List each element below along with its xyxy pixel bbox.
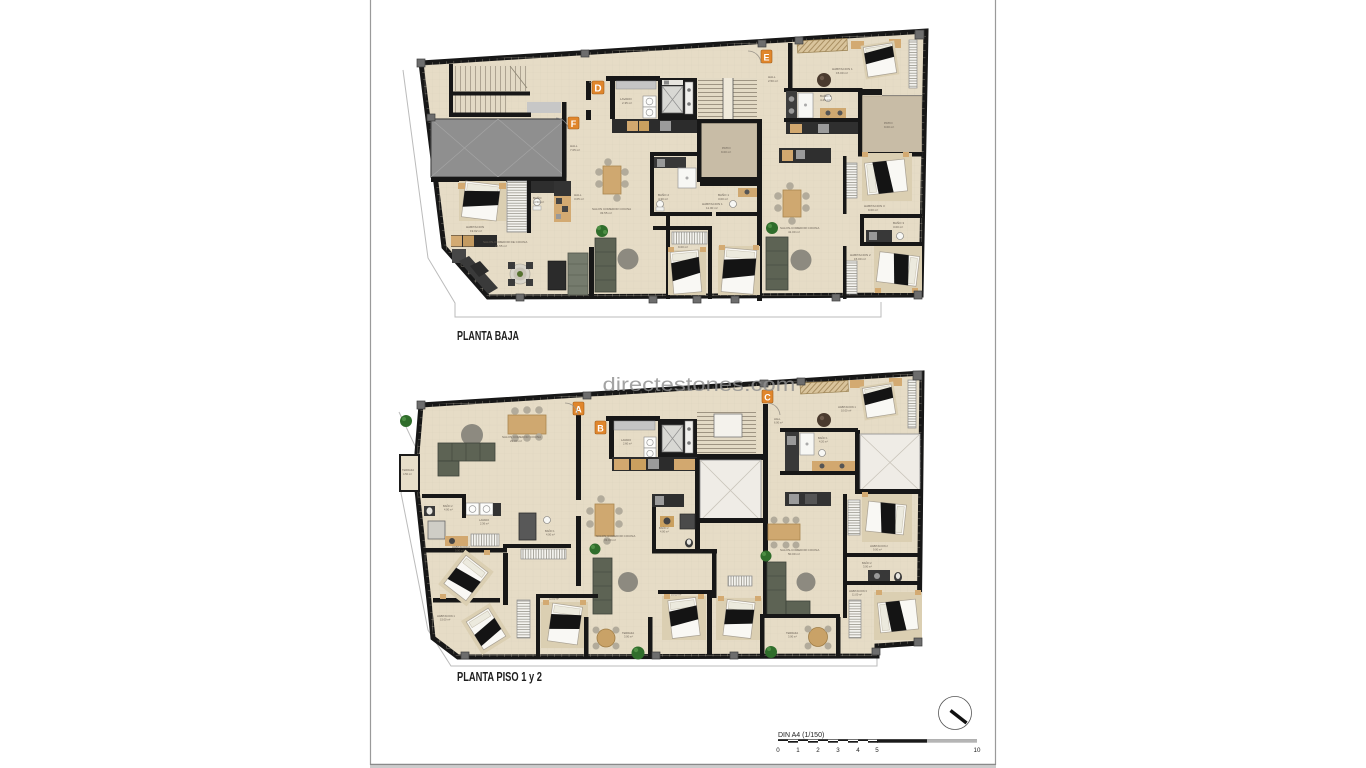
- svg-text:B: B: [597, 424, 604, 434]
- svg-text:LAVADO: LAVADO: [479, 518, 489, 522]
- svg-text:E: E: [763, 53, 769, 63]
- svg-text:2.60 m²: 2.60 m²: [623, 442, 632, 446]
- svg-text:9.00 m²: 9.00 m²: [455, 549, 464, 553]
- svg-text:4.00 m²: 4.00 m²: [546, 533, 555, 537]
- svg-text:2.50 m²: 2.50 m²: [768, 79, 778, 83]
- svg-text:4.00 m²: 4.00 m²: [660, 530, 669, 534]
- svg-text:7.05 m²: 7.05 m²: [570, 148, 580, 152]
- svg-text:3.50 m²: 3.50 m²: [534, 200, 544, 204]
- svg-text:3.00 m²: 3.00 m²: [788, 635, 797, 639]
- svg-text:3.00 m²: 3.00 m²: [624, 635, 633, 639]
- svg-text:3: 3: [836, 747, 840, 754]
- svg-text:HABITACION 2: HABITACION 2: [870, 544, 888, 548]
- svg-text:3.00 m²: 3.00 m²: [718, 197, 728, 201]
- svg-text:3.05 m²: 3.05 m²: [574, 197, 584, 201]
- svg-text:2.35 m²: 2.35 m²: [622, 101, 632, 105]
- svg-text:HABITACION 3: HABITACION 3: [849, 589, 867, 593]
- svg-text:0: 0: [776, 747, 780, 754]
- svg-text:24.55 m²: 24.55 m²: [495, 244, 507, 248]
- svg-text:2.36 m²: 2.36 m²: [480, 522, 489, 526]
- svg-text:HABITACION 1: HABITACION 1: [437, 614, 455, 618]
- svg-text:9.00 m²: 9.00 m²: [884, 125, 894, 129]
- svg-text:19.02 m²: 19.02 m²: [470, 229, 482, 233]
- svg-text:directestones.com: directestones.com: [603, 375, 796, 396]
- svg-text:HALL: HALL: [774, 417, 781, 421]
- svg-text:9.00 m²: 9.00 m²: [678, 245, 688, 249]
- svg-text:2: 2: [816, 747, 820, 754]
- svg-text:29.00 m²: 29.00 m²: [510, 439, 522, 443]
- svg-text:33.00 m²: 33.00 m²: [604, 538, 616, 542]
- svg-text:9.00 m²: 9.00 m²: [873, 548, 882, 552]
- svg-text:5: 5: [875, 747, 879, 754]
- svg-text:15.00 m²: 15.00 m²: [836, 71, 848, 75]
- svg-text:41.00 m²: 41.00 m²: [788, 230, 800, 234]
- svg-text:33.55 m²: 33.55 m²: [600, 211, 612, 215]
- svg-text:50.00 m²: 50.00 m²: [788, 552, 800, 556]
- svg-text:11.00 m²: 11.00 m²: [706, 206, 718, 210]
- svg-text:F: F: [571, 119, 577, 129]
- svg-text:9.00 m²: 9.00 m²: [868, 208, 878, 212]
- svg-text:TERRAZA: TERRAZA: [402, 468, 414, 472]
- svg-text:DIN A4 (1/150): DIN A4 (1/150): [778, 732, 824, 739]
- svg-text:4.30 m²: 4.30 m²: [658, 197, 668, 201]
- svg-text:4.50 m²: 4.50 m²: [403, 472, 412, 476]
- svg-text:TERRAZA: TERRAZA: [786, 631, 798, 635]
- svg-text:4: 4: [856, 747, 860, 754]
- svg-text:15.00 m²: 15.00 m²: [440, 618, 450, 622]
- svg-text:3.00 m²: 3.00 m²: [863, 565, 872, 569]
- svg-text:9.00 m²: 9.00 m²: [721, 150, 731, 154]
- svg-text:4.00 m²: 4.00 m²: [444, 508, 453, 512]
- svg-text:4.20 m²: 4.20 m²: [819, 440, 828, 444]
- svg-text:HABITACION 1: HABITACION 1: [838, 405, 856, 409]
- svg-text:10.00 m²: 10.00 m²: [841, 409, 851, 413]
- svg-text:4.25 m²: 4.25 m²: [820, 98, 830, 102]
- svg-text:PLANTA BAJA: PLANTA BAJA: [457, 329, 519, 343]
- svg-text:1: 1: [796, 747, 800, 754]
- svg-text:3.00 m²: 3.00 m²: [893, 225, 903, 229]
- svg-text:6.00 m²: 6.00 m²: [774, 421, 783, 425]
- svg-text:D: D: [594, 84, 601, 95]
- svg-text:10: 10: [974, 747, 981, 754]
- svg-text:TERRAZA: TERRAZA: [622, 631, 634, 635]
- svg-text:PLANTA PISO 1 y 2: PLANTA PISO 1 y 2: [457, 670, 542, 684]
- svg-text:LAVADO: LAVADO: [621, 438, 631, 442]
- svg-text:HABITACION 2: HABITACION 2: [452, 545, 470, 549]
- svg-text:15.00 m²: 15.00 m²: [854, 257, 866, 261]
- svg-text:11.00 m²: 11.00 m²: [852, 593, 862, 597]
